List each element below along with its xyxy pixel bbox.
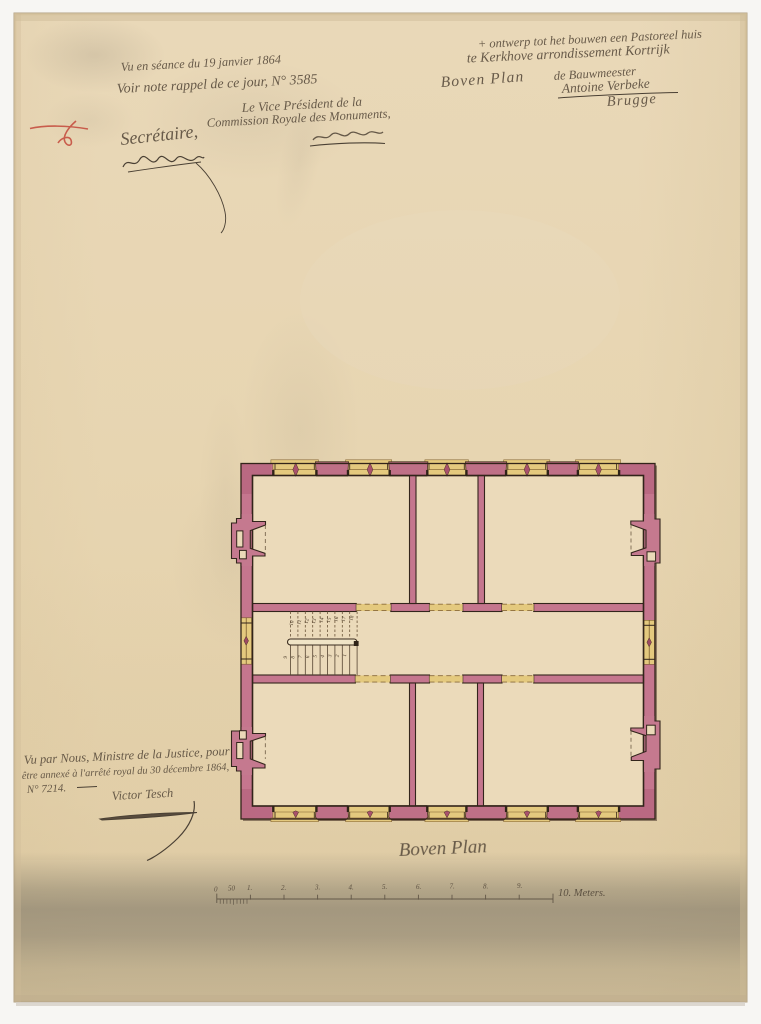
svg-text:6.: 6. — [416, 883, 422, 891]
svg-text:8.: 8. — [483, 883, 489, 891]
svg-text:4.: 4. — [349, 884, 355, 892]
svg-text:Boven Plan: Boven Plan — [398, 836, 487, 861]
svg-text:7.: 7. — [450, 883, 456, 891]
svg-text:N° 7214.: N° 7214. — [26, 782, 67, 796]
svg-text:10. Meters.: 10. Meters. — [558, 888, 606, 899]
svg-text:0: 0 — [214, 886, 218, 894]
svg-text:50: 50 — [228, 885, 236, 893]
svg-text:1.: 1. — [247, 884, 253, 892]
svg-text:9.: 9. — [517, 882, 523, 890]
svg-text:5.: 5. — [382, 883, 388, 891]
svg-text:2.: 2. — [281, 884, 287, 892]
svg-text:3.: 3. — [314, 884, 321, 892]
